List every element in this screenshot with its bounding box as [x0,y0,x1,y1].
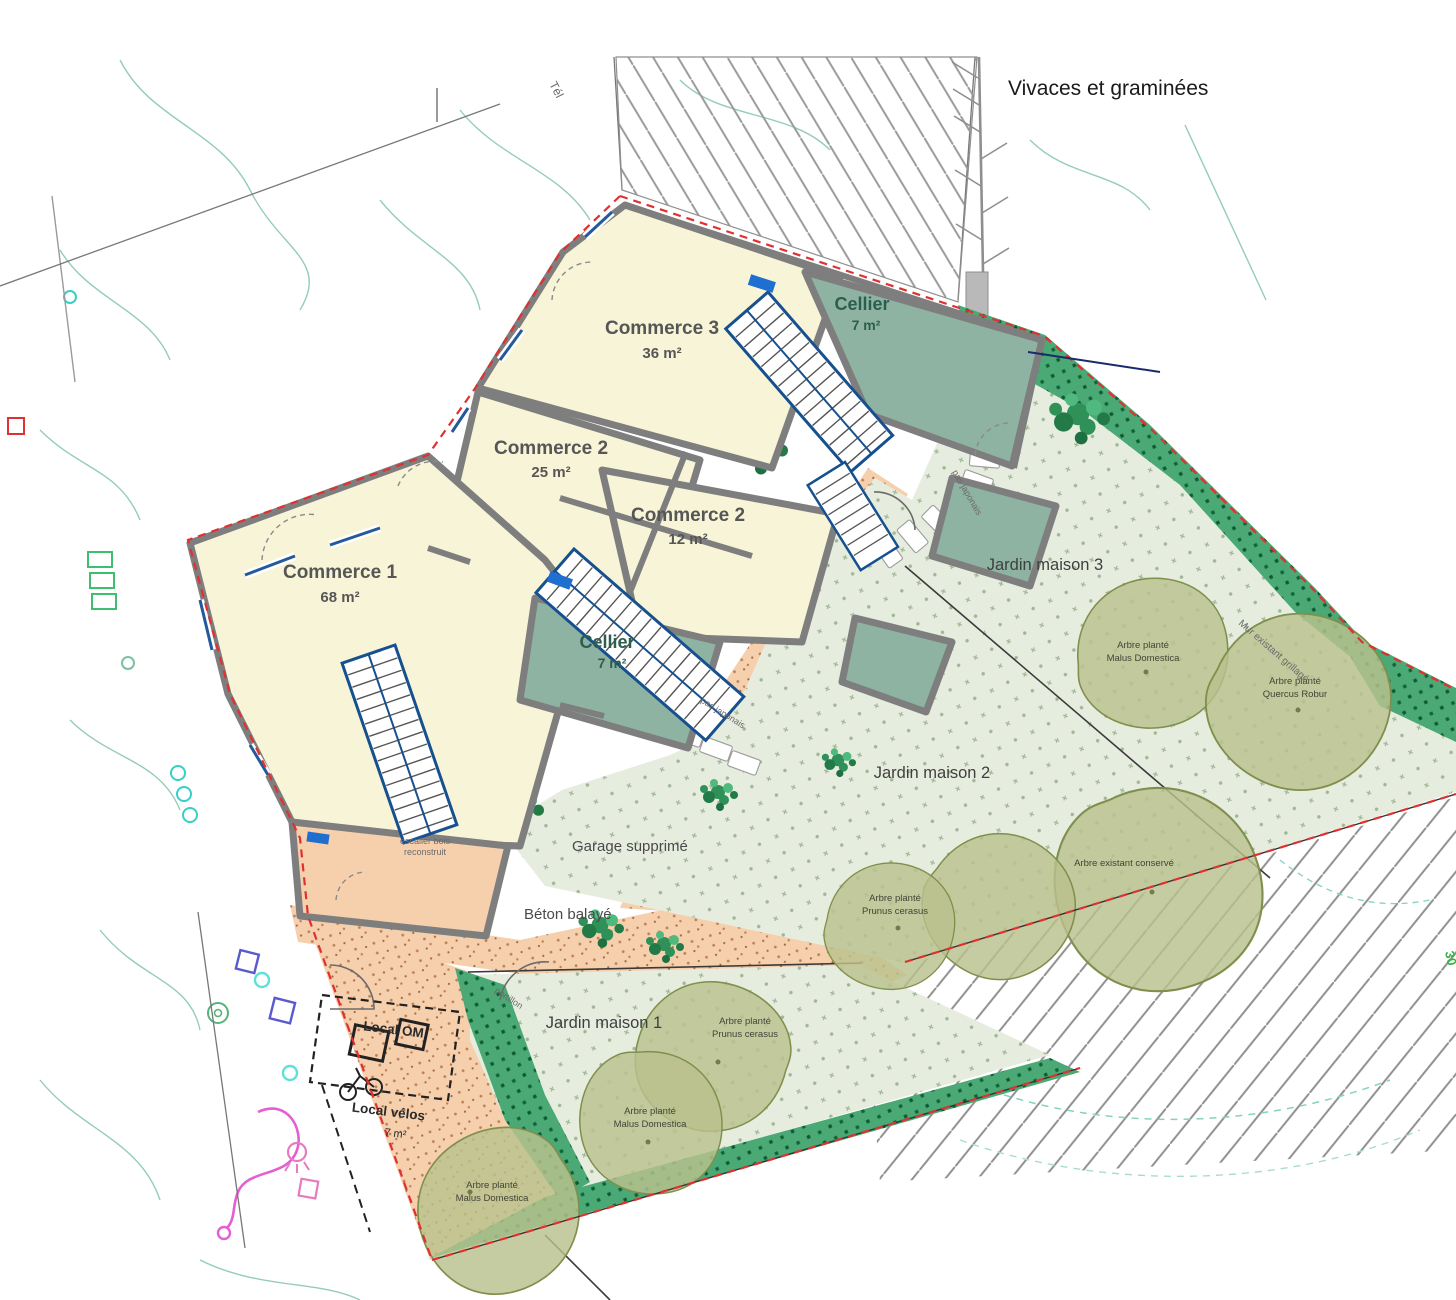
vivaces-label: Vivaces et graminées [1008,77,1208,100]
commerce2b-name: Commerce 2 [631,505,745,526]
cellier-bas-name: Cellier [579,632,634,652]
cellier-bas-area: 7 m² [598,655,627,671]
tree4-line1: Arbre planté [719,1016,771,1027]
garden1-label: Jardin maison 1 [546,1014,662,1032]
beton-label: Béton balayé [524,906,612,923]
commerce2a-area: 25 m² [531,464,570,481]
tree4-line2: Prunus cerasus [712,1029,778,1040]
garden2-label: Jardin maison 2 [874,764,990,782]
garden3-label: Jardin maison 3 [987,556,1103,574]
tree2-line1: Arbre existant conservé [1074,858,1174,869]
tree0-line1: Arbre planté [1117,640,1169,651]
site-plan-page: Vivaces et graminées Tél Commerce 3 36 m… [0,0,1456,1300]
site-plan-drawing: Vivaces et graminées Tél Commerce 3 36 m… [0,0,1456,1300]
commerce2a-name: Commerce 2 [494,438,608,459]
commerce1-area: 68 m² [320,589,359,606]
escalier-label-1: escalier bois [400,836,451,846]
cellier-haut-area: 7 m² [852,317,881,333]
commerce1-name: Commerce 1 [283,562,397,583]
commerce3-area: 36 m² [642,345,681,362]
commerce3-name: Commerce 3 [605,318,719,339]
tel-label: Tél [546,79,566,100]
cellier-haut-name: Cellier [834,294,889,314]
tree3-line2: Prunus cerasus [862,906,928,917]
commerce2b-area: 12 m² [668,531,707,548]
tree1-line2: Quercus Robur [1263,689,1327,700]
tree5-line2: Malus Domestica [614,1119,688,1130]
tree6-line2: Malus Domestica [456,1193,530,1204]
escalier-label-2: reconstruit [404,847,447,857]
tree1-line1: Arbre planté [1269,676,1321,687]
tree6-line1: Arbre planté [466,1180,518,1191]
tree5-line1: Arbre planté [624,1106,676,1117]
garage-label: Garage supprimé [572,838,688,855]
tree0-line2: Malus Domestica [1107,653,1181,664]
tree3-line1: Arbre planté [869,893,921,904]
